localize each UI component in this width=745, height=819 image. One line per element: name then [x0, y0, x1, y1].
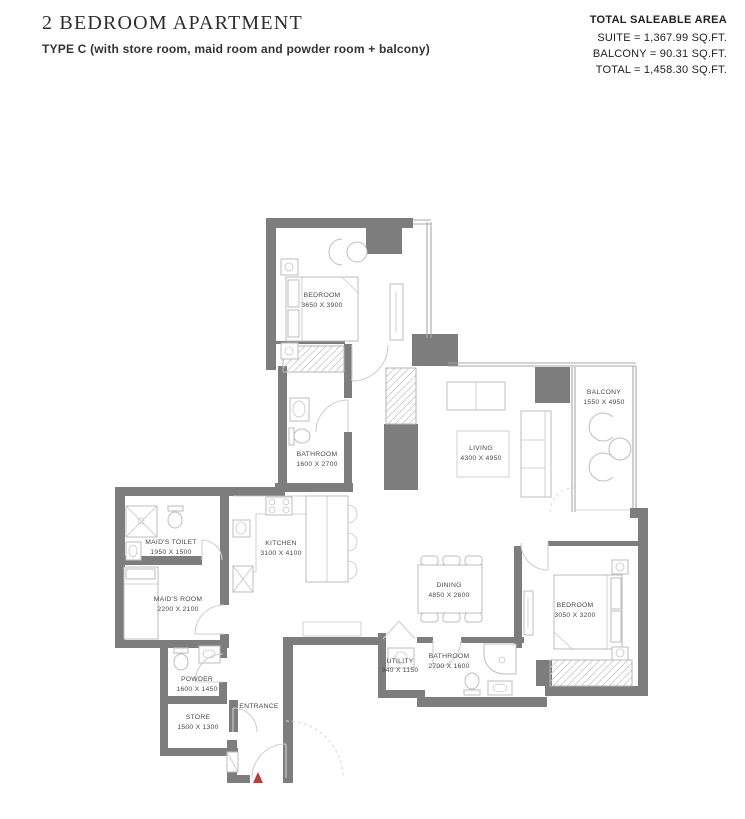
sofa-living — [521, 411, 551, 497]
toilet-bathroom2 — [464, 673, 480, 695]
room-dims-maids-toilet: 1950 X 1500 — [150, 549, 191, 556]
room-label-maids-toilet: MAID'S TOILET — [145, 539, 197, 546]
bar-stools — [348, 505, 357, 579]
door-bedroom2 — [521, 543, 548, 570]
door-bathroom1 — [316, 400, 348, 432]
sink-bathroom1 — [290, 398, 309, 421]
door-balcony — [550, 488, 574, 512]
room-dims-bathroom2: 2700 X 1600 — [428, 663, 469, 670]
bed-maids-room — [124, 567, 158, 639]
window-living-balcony-top — [448, 363, 636, 366]
balcony-chair — [589, 453, 613, 481]
room-label-kitchen: KITCHEN — [265, 540, 297, 547]
stove — [266, 497, 292, 515]
nightstand — [281, 343, 298, 359]
door-entrance — [252, 744, 286, 778]
door-maids-room — [195, 605, 224, 634]
room-dims-utility: 940 X 1150 — [382, 667, 419, 674]
dining-table — [418, 556, 482, 622]
room-dims-living: 4300 X 4950 — [460, 455, 501, 462]
window-bedroom1-right — [427, 222, 431, 338]
door-bedroom1 — [352, 345, 388, 381]
room-label-bathroom1: BATHROOM — [297, 451, 338, 458]
nightstand — [612, 560, 628, 574]
room-dims-store: 1500 X 1300 — [177, 724, 218, 731]
shoe-cabinet — [227, 752, 238, 772]
walls — [115, 218, 648, 783]
room-label-living: LIVING — [469, 445, 493, 452]
window-balcony-right — [633, 366, 636, 508]
window-bedroom1-top — [413, 220, 431, 224]
armchair-bedroom1 — [329, 239, 342, 265]
toilet-powder — [174, 648, 188, 670]
sliding-door-balcony — [572, 367, 575, 512]
room-label-store: STORE — [186, 714, 211, 721]
wardrobe-slim-bedroom2 — [524, 591, 533, 635]
room-dims-bedroom2: 3050 X 3200 — [554, 612, 595, 619]
room-label-bedroom2: BEDROOM — [557, 602, 594, 609]
tv-console — [447, 382, 505, 410]
shower-bathroom2 — [484, 644, 516, 674]
dresser-bedroom1 — [390, 284, 403, 340]
room-dims-maids-room: 2200 X 2100 — [157, 606, 198, 613]
room-dims-balcony: 1550 X 4950 — [583, 399, 624, 406]
balcony-table — [609, 438, 631, 460]
toilet-maids-toilet — [168, 506, 183, 528]
bed-bedroom1 — [286, 277, 358, 341]
toilet-bathroom1 — [289, 428, 310, 445]
room-label-utility: UTILITY — [386, 658, 413, 665]
closet-hall — [386, 368, 416, 424]
room-label-bedroom1: BEDROOM — [304, 292, 341, 299]
room-dims-bathroom1: 1600 X 2700 — [296, 461, 337, 468]
console-table — [303, 622, 361, 636]
room-label-dining: DINING — [436, 582, 461, 589]
shaft-top — [366, 227, 402, 254]
room-dims-bedroom1: 3650 X 3900 — [301, 302, 342, 309]
door-maids-toilet — [202, 540, 222, 560]
room-label-balcony: BALCONY — [587, 389, 621, 396]
door-utility-double — [383, 621, 415, 639]
balcony-chair — [589, 413, 613, 441]
entrance-marker-icon — [253, 772, 263, 783]
room-label-entrance: ENTRANCE — [239, 703, 279, 710]
kitchen-cabinet — [233, 566, 253, 592]
kitchen-island — [306, 496, 357, 582]
room-label-maids-room: MAID'S ROOM — [154, 596, 203, 603]
room-dims-kitchen: 3100 X 4100 — [260, 550, 301, 557]
room-label-bathroom2: BATHROOM — [429, 653, 470, 660]
sink-bathroom2 — [488, 681, 512, 695]
shower-maids-toilet — [126, 506, 157, 537]
shaft-middle — [412, 334, 458, 366]
wardrobe-bedroom2 — [550, 660, 632, 686]
sink-maids-toilet — [126, 542, 141, 560]
nightstand — [281, 259, 298, 275]
room-dims-dining: 4850 X 2600 — [428, 592, 469, 599]
room-label-powder: POWDER — [181, 676, 213, 683]
rug-living — [457, 431, 509, 477]
shaft-living — [535, 367, 570, 403]
door-entrance-swing — [286, 721, 343, 778]
room-dims-powder: 1600 X 1450 — [176, 686, 217, 693]
floor-plan: BEDROOM 3650 X 3900 BATHROOM 1600 X 2700… — [0, 0, 745, 819]
side-table-bedroom1 — [347, 242, 367, 262]
kitchen-sink — [233, 520, 250, 537]
